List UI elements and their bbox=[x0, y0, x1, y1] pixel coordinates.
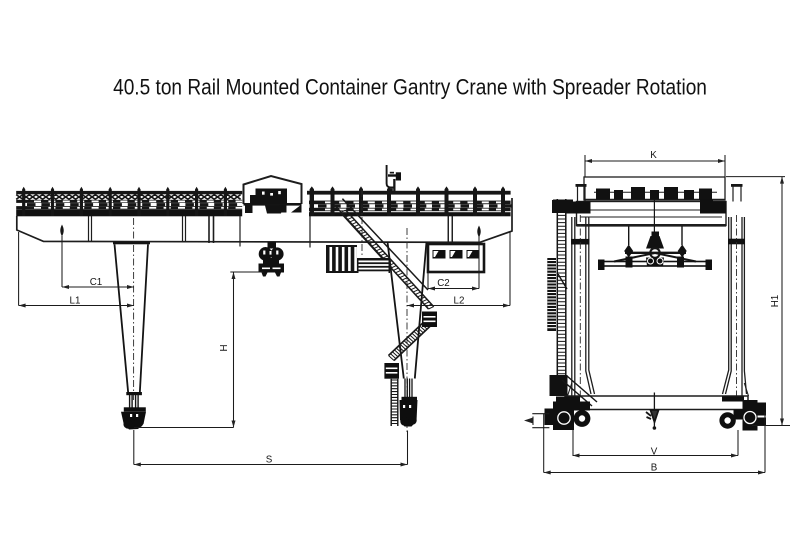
svg-text:H1: H1 bbox=[770, 295, 781, 308]
svg-text:K: K bbox=[650, 150, 657, 161]
svg-text:V: V bbox=[651, 447, 658, 458]
svg-text:40.5 ton Rail Mounted Containe: 40.5 ton Rail Mounted Container Gantry C… bbox=[113, 75, 707, 100]
svg-text:L2: L2 bbox=[454, 296, 465, 307]
svg-text:B: B bbox=[651, 463, 658, 474]
svg-text:C1: C1 bbox=[90, 277, 103, 288]
svg-text:L1: L1 bbox=[70, 296, 81, 307]
svg-text:S: S bbox=[266, 455, 273, 466]
svg-text:H: H bbox=[219, 344, 230, 351]
svg-text:C2: C2 bbox=[437, 278, 450, 289]
